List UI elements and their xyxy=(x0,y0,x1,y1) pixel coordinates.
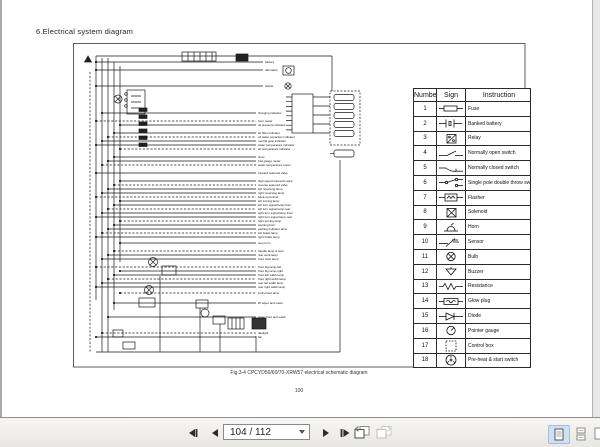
row-instruction: Solenoid xyxy=(466,205,531,220)
header-number: Number xyxy=(414,89,437,102)
table-row: 10 Sensor xyxy=(414,235,531,250)
banked-battery-symbol xyxy=(438,118,464,129)
pdf-toolbar xyxy=(0,417,600,447)
diagram-label: stop horn xyxy=(258,241,271,245)
diagram-label: front work lamp xyxy=(258,257,279,261)
row-instruction: Normally closed switch xyxy=(466,161,531,176)
diagram-label: instrument lamp xyxy=(258,291,280,295)
row-instruction: Pointer gauge xyxy=(466,323,531,338)
diagram-label: lift wiper and wash xyxy=(258,301,283,305)
row-instruction: Sensor xyxy=(466,235,531,250)
preheat-start-switch-symbol xyxy=(438,354,464,366)
horn-symbol xyxy=(438,222,464,233)
relay-symbol xyxy=(438,133,464,144)
row-number: 15 xyxy=(414,309,437,324)
next-page-button[interactable] xyxy=(316,424,334,441)
table-row: 4 Normally open switch xyxy=(414,146,531,161)
single-page-view-button[interactable] xyxy=(548,425,570,444)
scrollbar-track[interactable] xyxy=(592,0,600,417)
diagram-label: fan xyxy=(258,335,263,339)
header-sign: Sign xyxy=(437,89,466,102)
continuous-view-button[interactable] xyxy=(571,425,591,442)
table-row: 5 Normally closed switch xyxy=(414,161,531,176)
row-instruction: Glow plug xyxy=(466,294,531,309)
table-row: 13 Resistance xyxy=(414,279,531,294)
table-row: 9 Horn xyxy=(414,220,531,235)
row-number: 8 xyxy=(414,205,437,220)
page-dropdown-caret[interactable] xyxy=(299,430,305,434)
diagram-label: battery xyxy=(265,60,275,64)
page-number-input[interactable] xyxy=(223,424,310,440)
sensor-symbol xyxy=(438,237,464,248)
window-left-edge xyxy=(0,0,2,417)
row-instruction: Pre-heat & start switch xyxy=(466,353,531,368)
bulb-symbol xyxy=(438,251,464,262)
page-number: 100 xyxy=(73,388,525,394)
facing-pages-icon xyxy=(594,427,600,440)
previous-view-button[interactable] xyxy=(353,424,371,441)
header-instruction: Instruction xyxy=(466,89,531,102)
single-pole-double-throw-switch-symbol xyxy=(438,177,464,188)
control-box-symbol xyxy=(438,340,464,352)
table-row: 7 Flasher xyxy=(414,190,531,205)
row-number: 12 xyxy=(414,264,437,279)
row-instruction: Single pole double throw switch xyxy=(466,175,531,190)
buzzer-symbol xyxy=(438,266,464,277)
previous-page-button[interactable] xyxy=(205,424,223,441)
next-view-icon xyxy=(375,425,393,440)
glow-plug-symbol xyxy=(438,296,464,307)
continuous-pages-icon xyxy=(576,427,586,441)
pointer-gauge-symbol xyxy=(438,325,464,336)
diagram-label: wiper front and wash xyxy=(258,315,286,319)
row-number: 18 xyxy=(414,353,437,368)
row-number: 7 xyxy=(414,190,437,205)
diagram-label: air temperature indicator xyxy=(258,147,291,151)
document-page-area: 6.Electrical system diagram xyxy=(0,0,600,417)
row-instruction: Flasher xyxy=(466,190,531,205)
row-number: 10 xyxy=(414,235,437,250)
first-page-icon xyxy=(186,427,199,439)
table-row: 14 Glow plug xyxy=(414,294,531,309)
diagram-label: charging indicator xyxy=(258,111,282,115)
previous-view-icon xyxy=(353,425,371,440)
table-row: 6 Single pole double throw switch xyxy=(414,175,531,190)
row-number: 3 xyxy=(414,131,437,146)
diagram-label: alternator xyxy=(265,68,278,72)
row-number: 16 xyxy=(414,323,437,338)
row-instruction: Control box xyxy=(466,338,531,353)
row-number: 1 xyxy=(414,102,437,117)
row-number: 13 xyxy=(414,279,437,294)
previous-page-icon xyxy=(208,427,221,439)
facing-view-button[interactable] xyxy=(594,425,600,442)
row-instruction: Buzzer xyxy=(466,264,531,279)
row-number: 6 xyxy=(414,175,437,190)
row-instruction: Bulb xyxy=(466,249,531,264)
single-page-icon xyxy=(554,428,564,441)
diagram-label: right brake lamp xyxy=(258,235,280,239)
diagram-label: water temperature meter xyxy=(258,163,291,167)
row-number: 2 xyxy=(414,116,437,131)
solenoid-symbol xyxy=(438,207,464,218)
row-number: 11 xyxy=(414,249,437,264)
row-number: 5 xyxy=(414,161,437,176)
row-instruction: Banked battery xyxy=(466,116,531,131)
alternator-symbol xyxy=(283,66,294,75)
table-row: 17 Control box xyxy=(414,338,531,353)
last-page-button[interactable] xyxy=(336,424,354,441)
row-instruction: Resistance xyxy=(466,279,531,294)
table-row: 16 Pointer gauge xyxy=(414,323,531,338)
row-instruction: Horn xyxy=(466,220,531,235)
row-instruction: Fuse xyxy=(466,102,531,117)
table-row: 2 Banked battery xyxy=(414,116,531,131)
table-row: 1 Fuse xyxy=(414,102,531,117)
table-row: 15 Diode xyxy=(414,309,531,324)
row-instruction: Diode xyxy=(466,309,531,324)
diode-symbol xyxy=(438,311,464,322)
row-number: 17 xyxy=(414,338,437,353)
table-row: 3 Relay xyxy=(414,131,531,146)
flasher-symbol xyxy=(438,192,464,203)
symbol-legend-table: Number Sign Instruction 1 Fuse 2 Banked … xyxy=(413,88,531,368)
normally-open-switch-symbol xyxy=(438,148,464,159)
row-number: 9 xyxy=(414,220,437,235)
diagram-label: oil pressure indicator xyxy=(258,123,286,127)
next-page-icon xyxy=(319,427,332,439)
row-instruction: Relay xyxy=(466,131,531,146)
diagram-label: rear right width lamp xyxy=(258,285,286,289)
diagram-label: starter xyxy=(265,84,274,88)
last-page-icon xyxy=(339,427,352,439)
ground-arrow xyxy=(85,56,92,62)
battery-block xyxy=(236,54,248,61)
connector-block xyxy=(292,94,313,133)
table-row: 12 Buzzer xyxy=(414,264,531,279)
first-page-button[interactable] xyxy=(183,424,201,441)
normally-closed-switch-symbol xyxy=(438,163,464,174)
next-view-button[interactable] xyxy=(375,424,393,441)
diagram-label: forward solenoid valve xyxy=(258,171,288,175)
resistance-symbol xyxy=(438,281,464,292)
row-number: 14 xyxy=(414,294,437,309)
row-instruction: Normally open switch xyxy=(466,146,531,161)
table-header-row: Number Sign Instruction xyxy=(414,89,531,102)
table-row: 8 Solenoid xyxy=(414,205,531,220)
wire-labels: batteryalternatorstartercharging indicat… xyxy=(95,60,295,339)
fuse-symbol xyxy=(438,103,464,114)
table-row: 11 Bulb xyxy=(414,249,531,264)
figure-caption: Fig.3-4 CPCYD50/60/70-XRW57 electrical s… xyxy=(73,370,525,376)
row-number: 4 xyxy=(414,146,437,161)
table-row: 18 Pre-heat & start switch xyxy=(414,353,531,368)
